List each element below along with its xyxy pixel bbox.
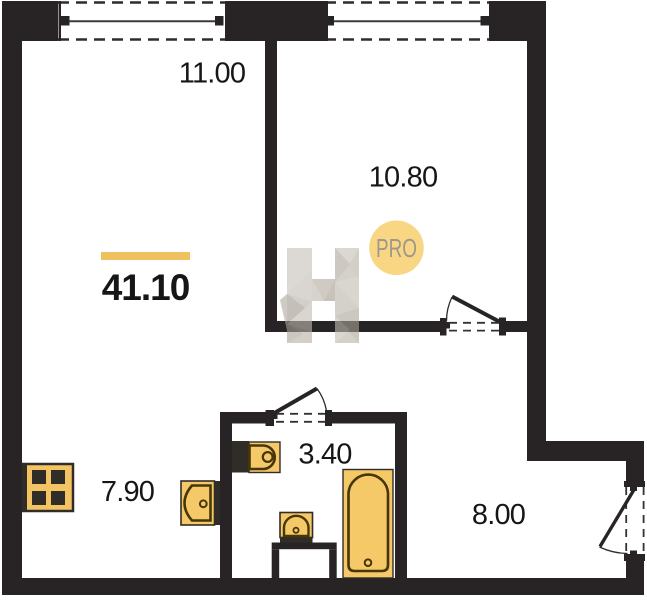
svg-text:11.00: 11.00 xyxy=(179,58,245,90)
svg-text:PRO: PRO xyxy=(376,233,417,263)
svg-text:7.90: 7.90 xyxy=(101,476,154,508)
svg-text:41.10: 41.10 xyxy=(102,267,190,308)
svg-text:3.40: 3.40 xyxy=(298,439,351,471)
svg-text:8.00: 8.00 xyxy=(472,499,525,531)
svg-text:10.80: 10.80 xyxy=(369,162,438,194)
